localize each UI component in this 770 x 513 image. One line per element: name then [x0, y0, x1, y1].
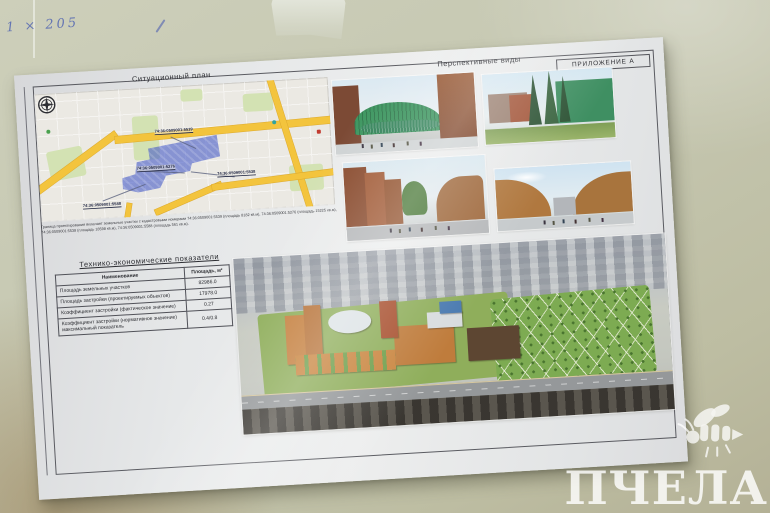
metro-icon: [317, 130, 321, 134]
render-people: [544, 221, 546, 225]
teo-table: Наименование Площадь, м² Площадь земельн…: [55, 264, 233, 336]
handwritten-number: 1 × 205: [6, 15, 80, 35]
bee-icon: [675, 395, 760, 465]
photo-of-planning-document: 1 × 205 ПРИЛОЖЕНИЕ А Ситуационный план П…: [0, 0, 770, 513]
render-low-building: [553, 197, 576, 216]
aerial-blue-roof: [439, 300, 461, 314]
aerial-dark-building: [467, 325, 521, 361]
watermark: ПЧЕЛА: [564, 465, 768, 511]
render-people: [361, 144, 363, 148]
aerial-view-rendering: [233, 233, 675, 434]
render-tower: [437, 72, 478, 139]
compass-icon: [37, 95, 56, 114]
perspective-render-4: [494, 161, 633, 231]
adhesive-tape: [270, 0, 345, 39]
perspective-render-3: [343, 155, 489, 241]
perspective-render-1: [332, 72, 478, 154]
render-people: [389, 228, 391, 232]
document-sheet: ПРИЛОЖЕНИЕ А Ситуационный план Перспекти…: [14, 37, 688, 500]
situational-plan-map: 74:36:0509001:5539 74:36:0509001:5276 74…: [34, 77, 335, 222]
perspective-render-2: [482, 67, 616, 145]
pen-mark: [155, 19, 165, 33]
render-tower: [384, 179, 404, 228]
green-area: [180, 89, 203, 102]
row-value: 0.4/0.8: [187, 309, 233, 329]
aerial-red-tower: [379, 300, 398, 338]
aerial-u-building: [393, 323, 456, 365]
green-area: [242, 92, 273, 112]
